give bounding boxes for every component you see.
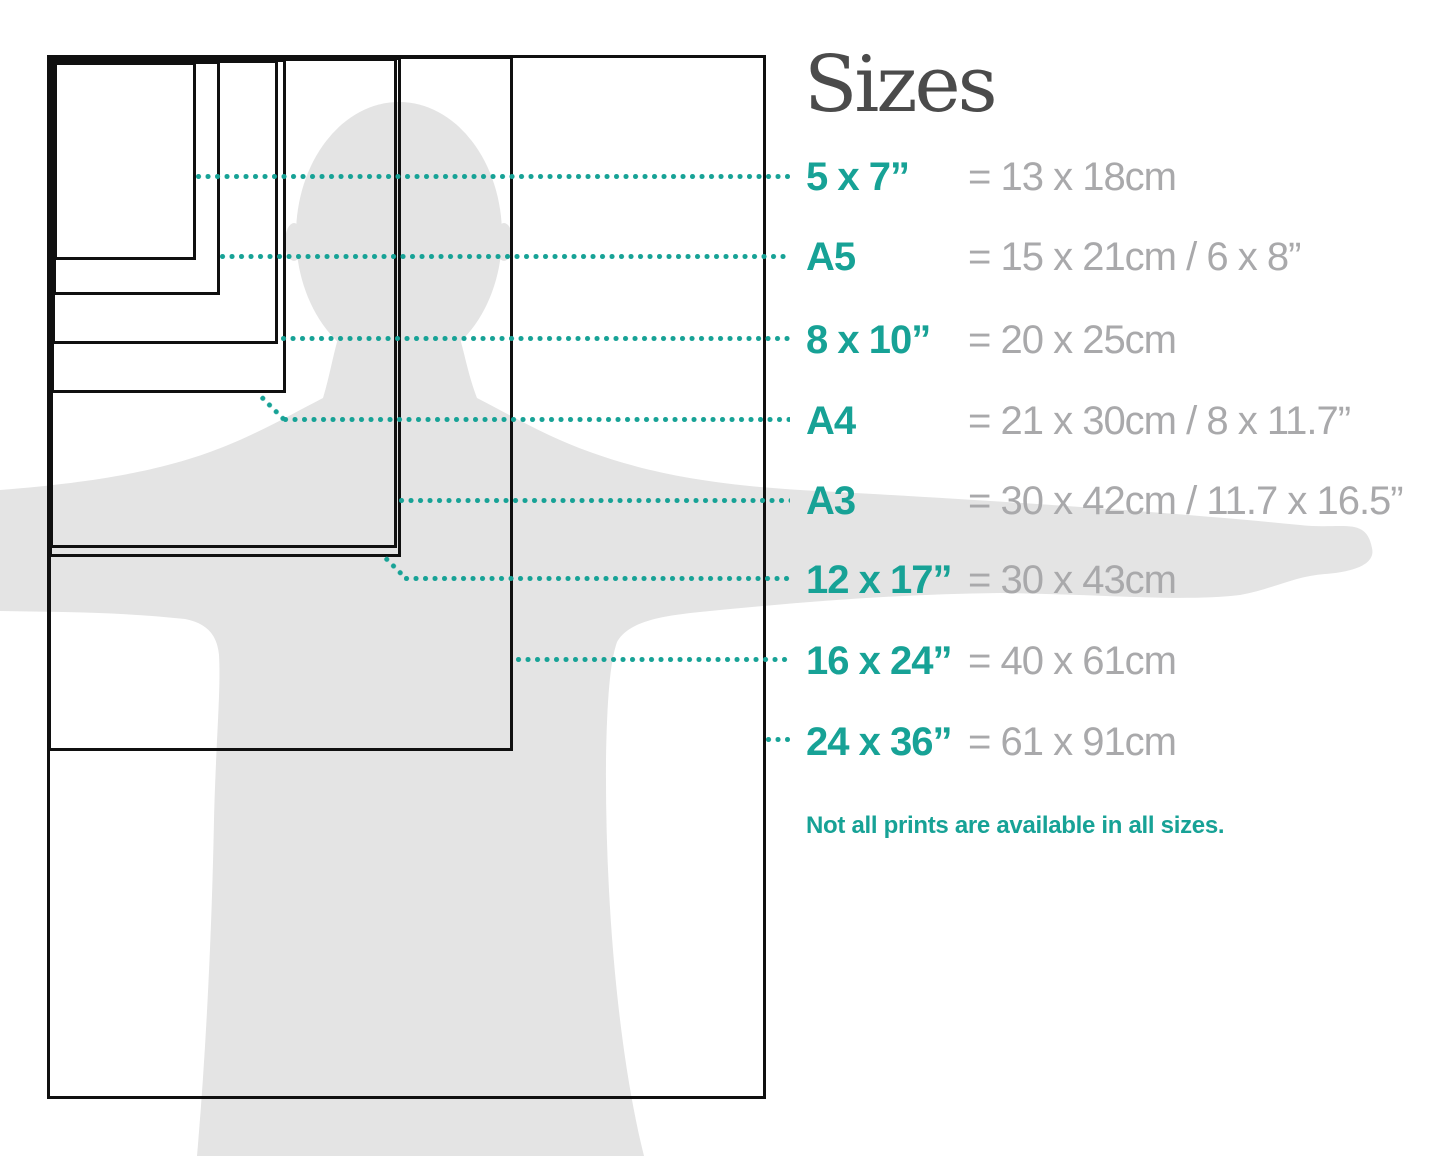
size-label-5x7: 5 x 7”	[806, 153, 909, 201]
size-label-12x17: 12 x 17”	[806, 556, 951, 604]
size-label-a3: A3	[806, 477, 855, 525]
size-label-a4: A4	[806, 397, 855, 445]
leader-5x7	[196, 174, 790, 179]
leader-24x36	[766, 737, 790, 742]
size-metric-a3: = 30 x 42cm / 11.7 x 16.5”	[968, 477, 1403, 525]
page-title: Sizes	[804, 42, 995, 128]
size-label-a5: A5	[806, 233, 855, 281]
leader-16x24	[516, 657, 790, 662]
size-label-8x10: 8 x 10”	[806, 316, 930, 364]
size-metric-24x36: = 61 x 91cm	[968, 718, 1176, 766]
leader-a4	[283, 417, 790, 422]
availability-note: Not all prints are available in all size…	[806, 812, 1224, 840]
size-label-24x36: 24 x 36”	[806, 718, 951, 766]
size-metric-a5: = 15 x 21cm / 6 x 8”	[968, 233, 1300, 281]
leader-8x10	[281, 336, 790, 341]
size-metric-a4: = 21 x 30cm / 8 x 11.7”	[968, 397, 1350, 445]
leader-a3	[399, 498, 790, 503]
size-metric-16x24: = 40 x 61cm	[968, 637, 1176, 685]
size-label-16x24: 16 x 24”	[806, 637, 951, 685]
size-guide-infographic: Sizes 5 x 7” = 13 x 18cm A5 = 15 x 21cm …	[0, 0, 1445, 1156]
size-rectangle-5x7	[54, 62, 196, 260]
leader-12x17	[404, 576, 790, 581]
size-metric-5x7: = 13 x 18cm	[968, 153, 1176, 201]
leader-a5	[220, 254, 790, 259]
size-metric-12x17: = 30 x 43cm	[968, 556, 1176, 604]
size-metric-8x10: = 20 x 25cm	[968, 316, 1176, 364]
